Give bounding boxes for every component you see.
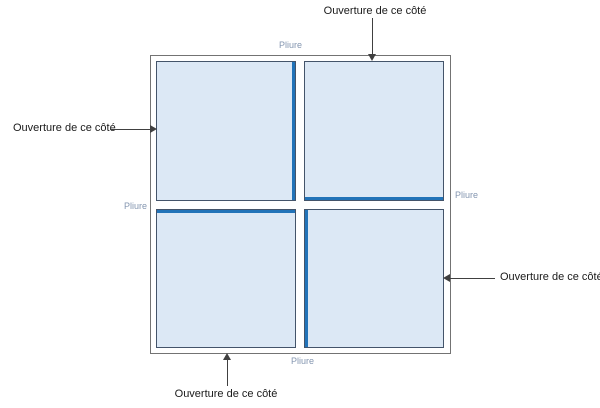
- arrow-right-line: [450, 278, 495, 279]
- panel-bottom-right: [304, 209, 444, 348]
- arrow-down-icon: [368, 54, 376, 61]
- arrow-right-icon: [150, 125, 157, 133]
- opening-label-bottom: Ouverture de ce côté: [175, 388, 278, 400]
- fold-label-top: Pliure: [279, 41, 302, 51]
- fold-line-top-right: [305, 197, 443, 200]
- arrow-bottom-line: [227, 360, 228, 386]
- fold-line-top-left: [292, 62, 295, 200]
- panel-bottom-left: [156, 209, 296, 348]
- fold-label-left: Pliure: [124, 202, 147, 212]
- arrow-left-line: [110, 129, 150, 130]
- fold-label-right: Pliure: [455, 191, 478, 201]
- arrow-up-icon: [223, 353, 231, 360]
- fold-line-bottom-right: [305, 210, 308, 347]
- fold-label-bottom: Pliure: [291, 357, 314, 367]
- opening-label-left: Ouverture de ce côté: [13, 122, 116, 134]
- fold-line-bottom-left: [157, 210, 295, 213]
- panel-top-left: [156, 61, 296, 201]
- fold-diagram-canvas: Ouverture de ce côté Ouverture de ce côt…: [0, 0, 600, 408]
- arrow-top-line: [372, 18, 373, 54]
- arrow-left-icon: [443, 274, 450, 282]
- opening-label-right: Ouverture de ce côté: [500, 271, 600, 283]
- panel-top-right: [304, 61, 444, 201]
- opening-label-top: Ouverture de ce côté: [324, 5, 427, 17]
